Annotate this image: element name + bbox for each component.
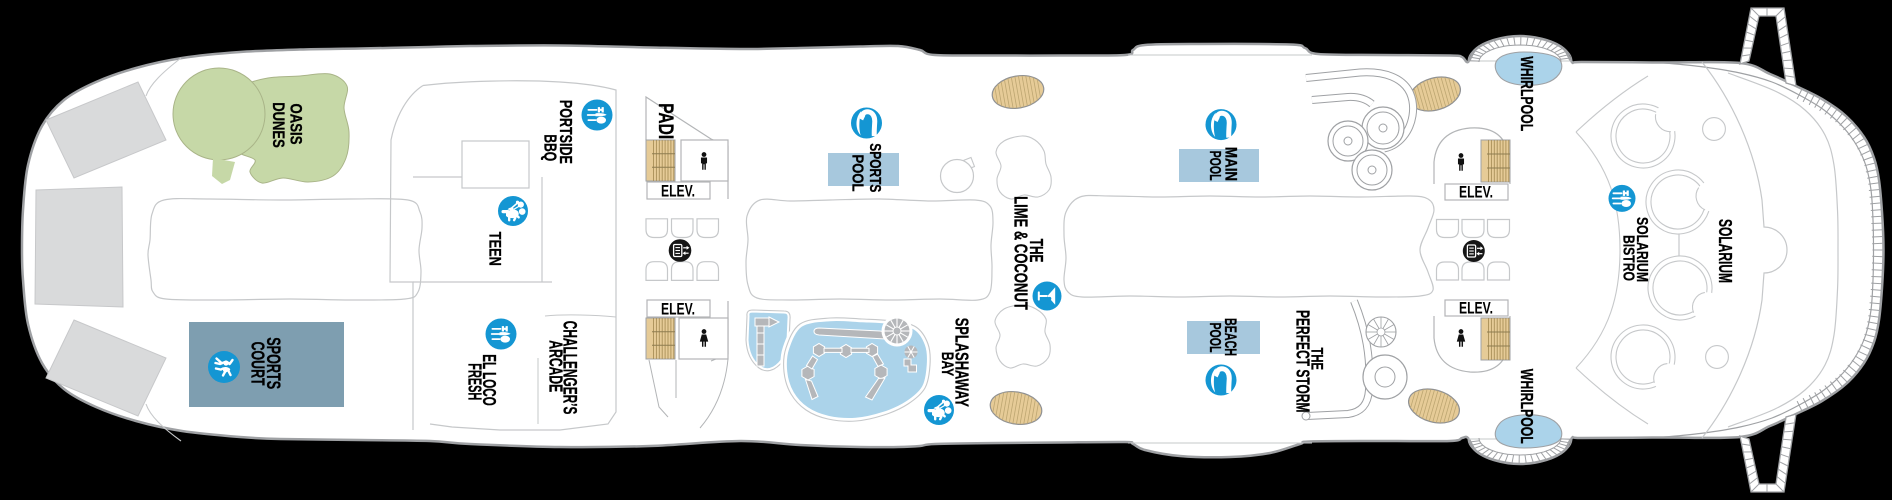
svg-text:COURT: COURT bbox=[247, 342, 268, 386]
svg-text:SOLARIUM: SOLARIUM bbox=[1715, 219, 1735, 283]
svg-text:ELEV.: ELEV. bbox=[661, 301, 695, 319]
svg-text:POOL: POOL bbox=[1206, 323, 1223, 353]
svg-text:DUNES: DUNES bbox=[269, 102, 287, 148]
svg-text:LIME & COCONUT: LIME & COCONUT bbox=[1011, 196, 1032, 310]
svg-text:PADI: PADI bbox=[654, 103, 677, 139]
svg-text:WHIRLPOOL: WHIRLPOOL bbox=[1517, 369, 1537, 444]
svg-text:POOL: POOL bbox=[1206, 151, 1223, 181]
svg-text:ARCADE: ARCADE bbox=[545, 340, 565, 392]
svg-text:OASIS: OASIS bbox=[287, 104, 305, 145]
svg-text:FRESH: FRESH bbox=[465, 363, 486, 400]
svg-text:PERFECT STORM: PERFECT STORM bbox=[1293, 310, 1314, 413]
svg-text:ELEV.: ELEV. bbox=[1459, 184, 1493, 202]
svg-text:ELEV.: ELEV. bbox=[1459, 300, 1493, 318]
svg-text:WHIRLPOOL: WHIRLPOOL bbox=[1517, 56, 1537, 131]
svg-text:BBQ: BBQ bbox=[541, 134, 561, 161]
svg-text:BISTRO: BISTRO bbox=[1620, 235, 1637, 281]
svg-text:POOL: POOL bbox=[849, 155, 866, 192]
svg-text:TEEN: TEEN bbox=[486, 232, 505, 266]
svg-text:ELEV.: ELEV. bbox=[661, 183, 695, 201]
svg-text:BAY: BAY bbox=[938, 352, 957, 377]
svg-text:SPORTS: SPORTS bbox=[866, 143, 883, 192]
